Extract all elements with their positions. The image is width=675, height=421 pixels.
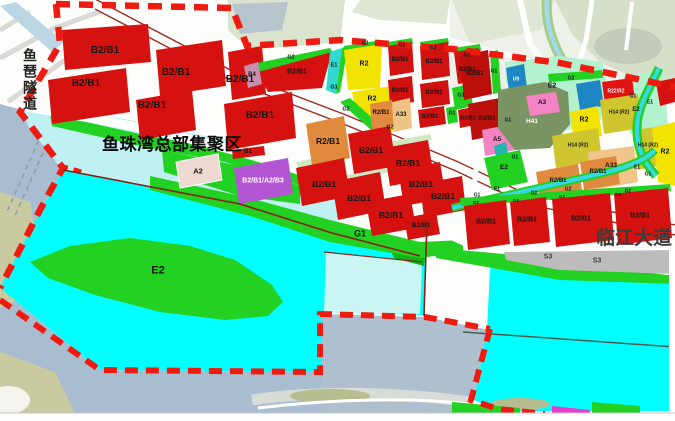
- zone-label: B4: [248, 72, 256, 78]
- zone-label: G1: [474, 194, 481, 199]
- zone-label: B2/B1: [425, 59, 442, 65]
- zone-label: B2/B1: [460, 116, 476, 122]
- zone-label: R2/B1: [316, 137, 340, 146]
- zone-label: G1: [449, 112, 456, 117]
- zone-label: E2: [500, 165, 508, 172]
- zone-label: R2/B1: [549, 178, 566, 184]
- zone-label: G2: [615, 193, 621, 198]
- zone-label: G1: [645, 173, 652, 178]
- zone-label: R2/B1: [372, 110, 389, 116]
- zone-label: E2: [548, 83, 557, 90]
- zone-label: U9: [513, 78, 519, 83]
- zone-label: G2: [559, 195, 565, 200]
- zone-label: B2/B1: [246, 111, 274, 121]
- tunnel-name-label: 鱼琶隧道: [20, 48, 40, 143]
- zone-label: B1: [244, 149, 252, 156]
- road-name-label: 临江大道: [596, 223, 672, 250]
- zone-label: B2/B1: [412, 223, 430, 230]
- zone-label: B2/B1/A2/B3: [242, 178, 284, 185]
- zone-label: H14 (R2): [609, 111, 629, 116]
- zone-label: B2/B1: [425, 90, 442, 96]
- zone-label: G2: [513, 199, 519, 204]
- zone-label: S3: [544, 254, 553, 261]
- zone-label: G2: [625, 190, 632, 195]
- zone-label: E1: [634, 166, 640, 171]
- zone-label: R2: [360, 61, 369, 68]
- zone-label: E1: [647, 101, 653, 106]
- zone-label: G2: [565, 188, 572, 193]
- zone-label: B2/B1: [359, 146, 383, 155]
- zone-label: A33: [605, 163, 617, 170]
- zone-label: B2/B1: [466, 71, 483, 77]
- zone-label: R22/R2: [608, 90, 625, 95]
- zone-label: B2/B1: [391, 88, 408, 94]
- zone-label: A3: [538, 100, 546, 107]
- zone-label: H41: [526, 119, 538, 126]
- zone-label: G1: [630, 95, 637, 100]
- zoning-map-graphic: [0, 0, 675, 421]
- zone-label: A33: [395, 112, 406, 118]
- zone-label: S3: [593, 258, 602, 265]
- zone-label: G2: [386, 125, 393, 131]
- zone-label: G1: [457, 93, 464, 99]
- zone-label: E1: [494, 188, 500, 193]
- zone-label: B2/B1: [478, 116, 495, 122]
- zone-label: G1: [491, 70, 498, 75]
- zone-label: B2/B1: [421, 114, 438, 120]
- zone-label: G1: [354, 230, 366, 239]
- zone-label: B2/B1: [409, 180, 433, 189]
- zone-label: B2/B1: [312, 180, 336, 189]
- zone-label: B2/B1: [630, 213, 650, 220]
- zone-label: B2/B1: [476, 219, 496, 226]
- region-title: 鱼珠湾总部集聚区: [102, 130, 242, 155]
- zone-label: G2: [430, 47, 437, 52]
- zone-label: B2/B1: [138, 101, 166, 111]
- zone-label: G2: [399, 44, 406, 49]
- zone-label: G2: [362, 42, 369, 47]
- zone-label: G2: [342, 107, 349, 113]
- zone-label: G1: [330, 85, 337, 91]
- zone-label: B2/B1: [287, 69, 307, 76]
- zone-label: H14 (R2): [638, 144, 658, 149]
- zone-label: E2: [632, 107, 639, 113]
- zone-label: A5: [493, 137, 501, 144]
- zone-label: G2: [568, 77, 575, 82]
- zone-label: R2: [580, 117, 589, 124]
- zone-label: E1: [331, 63, 338, 69]
- zone-label: G2: [464, 54, 471, 59]
- zone-label: G2: [473, 201, 479, 206]
- zone-label: R2: [368, 96, 377, 103]
- zone-label: B2/B1: [72, 79, 100, 89]
- zone-label: G1: [505, 119, 512, 124]
- zone-label: B2/B1: [517, 217, 537, 224]
- zone-label: B2/B1: [162, 68, 190, 78]
- zone-label: H14 (R2): [568, 144, 588, 149]
- zone-label: B2/B1: [391, 57, 408, 63]
- zone-label: B2/B1: [396, 159, 420, 168]
- zone-label: B2/B1: [347, 194, 371, 203]
- zone-label: G2: [531, 192, 538, 197]
- zone-label: B2/B1: [571, 216, 591, 223]
- zone-label: B2/B1: [379, 211, 403, 220]
- zone-label: G2: [287, 55, 294, 61]
- zone-label: B2/B1: [431, 192, 455, 201]
- zone-label: R2: [661, 149, 670, 156]
- zone-label: G1: [512, 156, 519, 161]
- zone-label: A2: [193, 167, 203, 175]
- zone-label: R2/B1: [589, 169, 606, 175]
- zone-label: B2/B1: [91, 46, 119, 56]
- zoning-map[interactable]: B2/B1B2/B1B2/B1B2/B1B2/B1B2/B1B2/B1B4G2E…: [0, 0, 675, 421]
- zone-label: E2: [151, 266, 164, 277]
